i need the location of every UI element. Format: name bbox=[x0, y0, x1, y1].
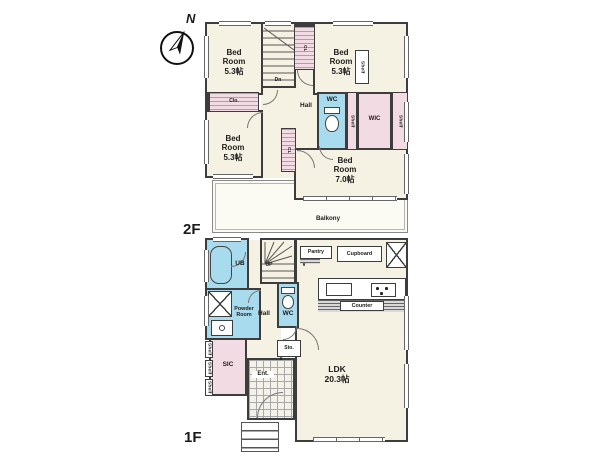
closet-clo: Clo. bbox=[209, 92, 259, 112]
toilet-bowl-icon bbox=[325, 115, 339, 132]
counter: Counter bbox=[340, 301, 384, 311]
bedroom-w-label: Bed Room 5.3帖 bbox=[215, 134, 251, 162]
compass-north-label: N bbox=[186, 11, 195, 26]
room-area: 5.3帖 bbox=[216, 67, 252, 76]
pantry: Pantry bbox=[300, 246, 332, 259]
room-area: 20.3帖 bbox=[311, 374, 363, 384]
closet-a-label: CL bbox=[302, 45, 307, 52]
room-name: Bed Room bbox=[215, 134, 251, 153]
window bbox=[404, 36, 409, 78]
window bbox=[213, 174, 253, 179]
closet-clo-label: Clo. bbox=[229, 99, 238, 105]
window bbox=[204, 120, 209, 164]
shelf-left-strip: Shelf bbox=[347, 92, 357, 150]
sic-label: SIC bbox=[213, 361, 243, 369]
unit-bath-label: UB bbox=[231, 260, 249, 268]
entrance-steps bbox=[241, 422, 279, 452]
ldk-label: LDK 20.3帖 bbox=[311, 364, 363, 384]
window bbox=[404, 102, 409, 142]
counter-label: Counter bbox=[352, 303, 373, 309]
wc-1f-label: WC bbox=[278, 310, 298, 318]
shelf-right-label: Shelf bbox=[398, 115, 403, 128]
room-area: 5.3帖 bbox=[323, 67, 359, 76]
room-area: 7.0帖 bbox=[328, 175, 362, 184]
shelf-label: Shelf bbox=[207, 381, 212, 394]
room-name: Bed Room bbox=[323, 48, 359, 67]
wc-2f-label: WC bbox=[319, 96, 345, 104]
stair-steps-icon bbox=[262, 240, 294, 282]
staircase-1f bbox=[260, 238, 296, 284]
floor-label-1f: 1F bbox=[184, 429, 202, 447]
stairs-up-label: UP bbox=[261, 263, 277, 269]
wic-label: WIC bbox=[359, 116, 390, 123]
entrance-label: Ent. bbox=[252, 371, 274, 378]
toilet-bowl-icon bbox=[282, 295, 294, 309]
second-floor-plan: Balkony Clo. CL CL Shelf bbox=[205, 22, 409, 236]
balcony-label: Balkony bbox=[305, 215, 351, 222]
window bbox=[219, 21, 251, 26]
floor-plan-image: N 2F 1F Balkony Clo. bbox=[0, 0, 600, 464]
toilet-tank-icon bbox=[324, 107, 340, 114]
bedroom-shelf-label: Shelf bbox=[360, 61, 365, 74]
window bbox=[204, 250, 209, 282]
window bbox=[404, 364, 409, 408]
closet-b: CL bbox=[281, 128, 296, 172]
room-name: Bed Room bbox=[328, 156, 362, 175]
hall-2f-label: Hall bbox=[291, 102, 321, 110]
refrigerator-space-icon bbox=[386, 242, 407, 268]
shelf-left-label: Shelf bbox=[350, 115, 355, 128]
window bbox=[213, 237, 241, 242]
window bbox=[265, 21, 291, 26]
room-name: Bed Room bbox=[216, 48, 252, 67]
cupboard-label: Cupboard bbox=[347, 251, 372, 257]
toilet-tank-icon bbox=[281, 287, 295, 294]
closet-b-label: CL bbox=[286, 147, 291, 154]
stairs-down-label: Dn bbox=[269, 78, 287, 84]
stove-icon bbox=[371, 283, 396, 297]
window bbox=[333, 21, 373, 26]
sliding-window bbox=[313, 437, 385, 442]
hall-1f-label: Hall bbox=[253, 310, 275, 318]
bathtub-icon bbox=[210, 246, 232, 284]
storage-label: Sto. bbox=[284, 346, 293, 352]
window bbox=[204, 296, 209, 326]
bedroom-se-label: Bed Room 7.0帖 bbox=[328, 156, 362, 184]
window bbox=[404, 154, 409, 194]
sink-bowl-icon bbox=[219, 325, 225, 331]
pantry-label: Pantry bbox=[308, 249, 324, 255]
shelf-label: Shelf bbox=[207, 362, 212, 375]
sliding-window bbox=[303, 196, 397, 201]
door-fold-mark: ∨ bbox=[302, 263, 306, 269]
floor-label-2f: 2F bbox=[183, 221, 201, 239]
window bbox=[404, 296, 409, 350]
compass: N bbox=[156, 12, 202, 70]
closet-a: CL bbox=[294, 26, 315, 70]
shelf-label: Shelf bbox=[207, 343, 212, 356]
vanity-sink-icon bbox=[211, 320, 233, 336]
room-name: LDK bbox=[311, 364, 363, 374]
sic-shelf-2: Shelf bbox=[205, 360, 213, 377]
kitchen-sink-icon bbox=[326, 283, 352, 296]
sic-shelf-3: Shelf bbox=[205, 379, 213, 396]
cupboard: Cupboard bbox=[337, 246, 382, 262]
bedroom-ne-label: Bed Room 5.3帖 bbox=[323, 48, 359, 76]
bedroom-nw-label: Bed Room 5.3帖 bbox=[216, 48, 252, 76]
room-area: 5.3帖 bbox=[215, 153, 251, 162]
sic-shelf-1: Shelf bbox=[205, 341, 213, 358]
window bbox=[204, 36, 209, 78]
door-fold-mark: ∨ bbox=[279, 357, 283, 363]
first-floor-plan: Shelf Shelf Shelf Sto. ∨ Pantry ∨ Cupboa… bbox=[205, 238, 409, 458]
